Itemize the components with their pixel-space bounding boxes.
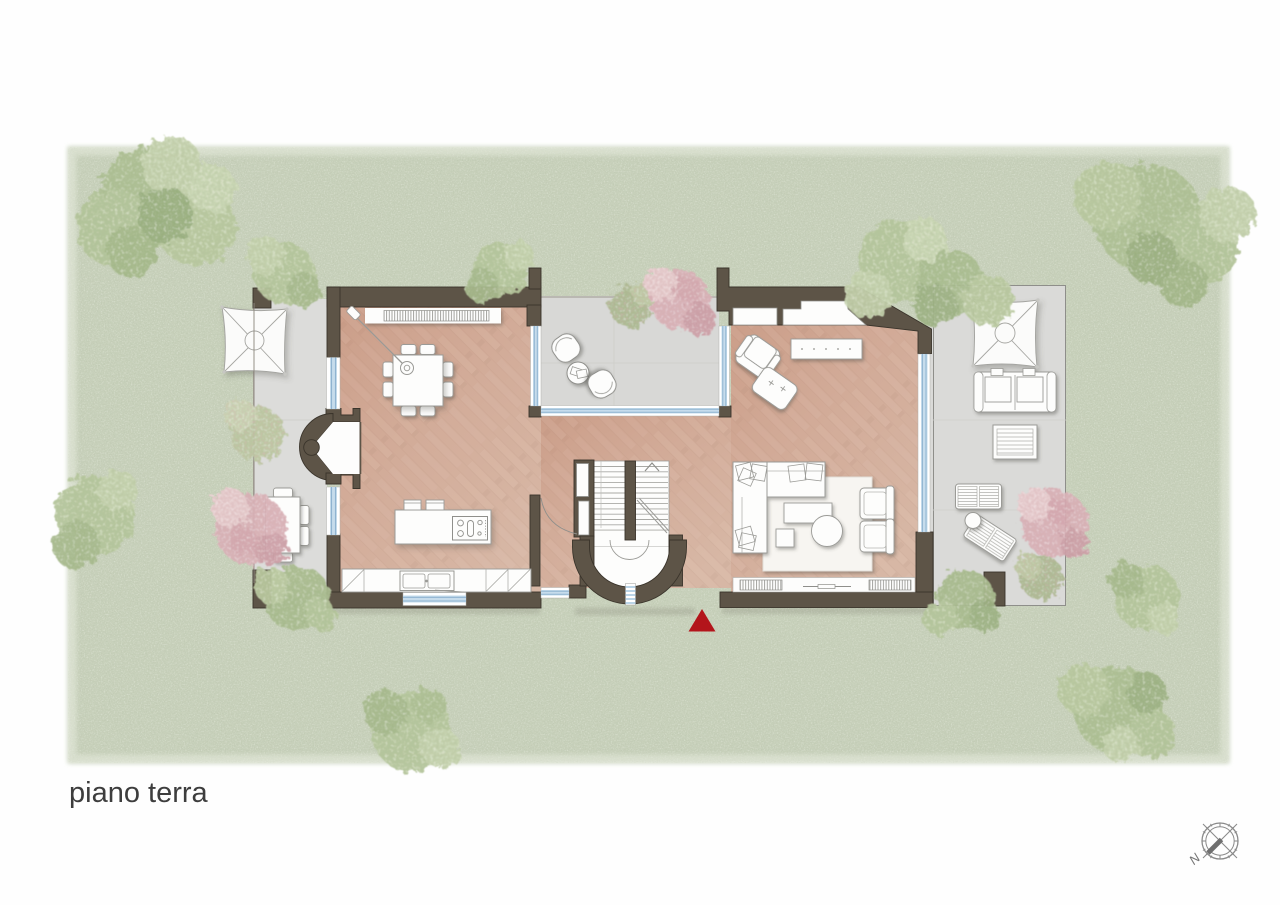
svg-text:piano terra: piano terra	[69, 777, 209, 809]
